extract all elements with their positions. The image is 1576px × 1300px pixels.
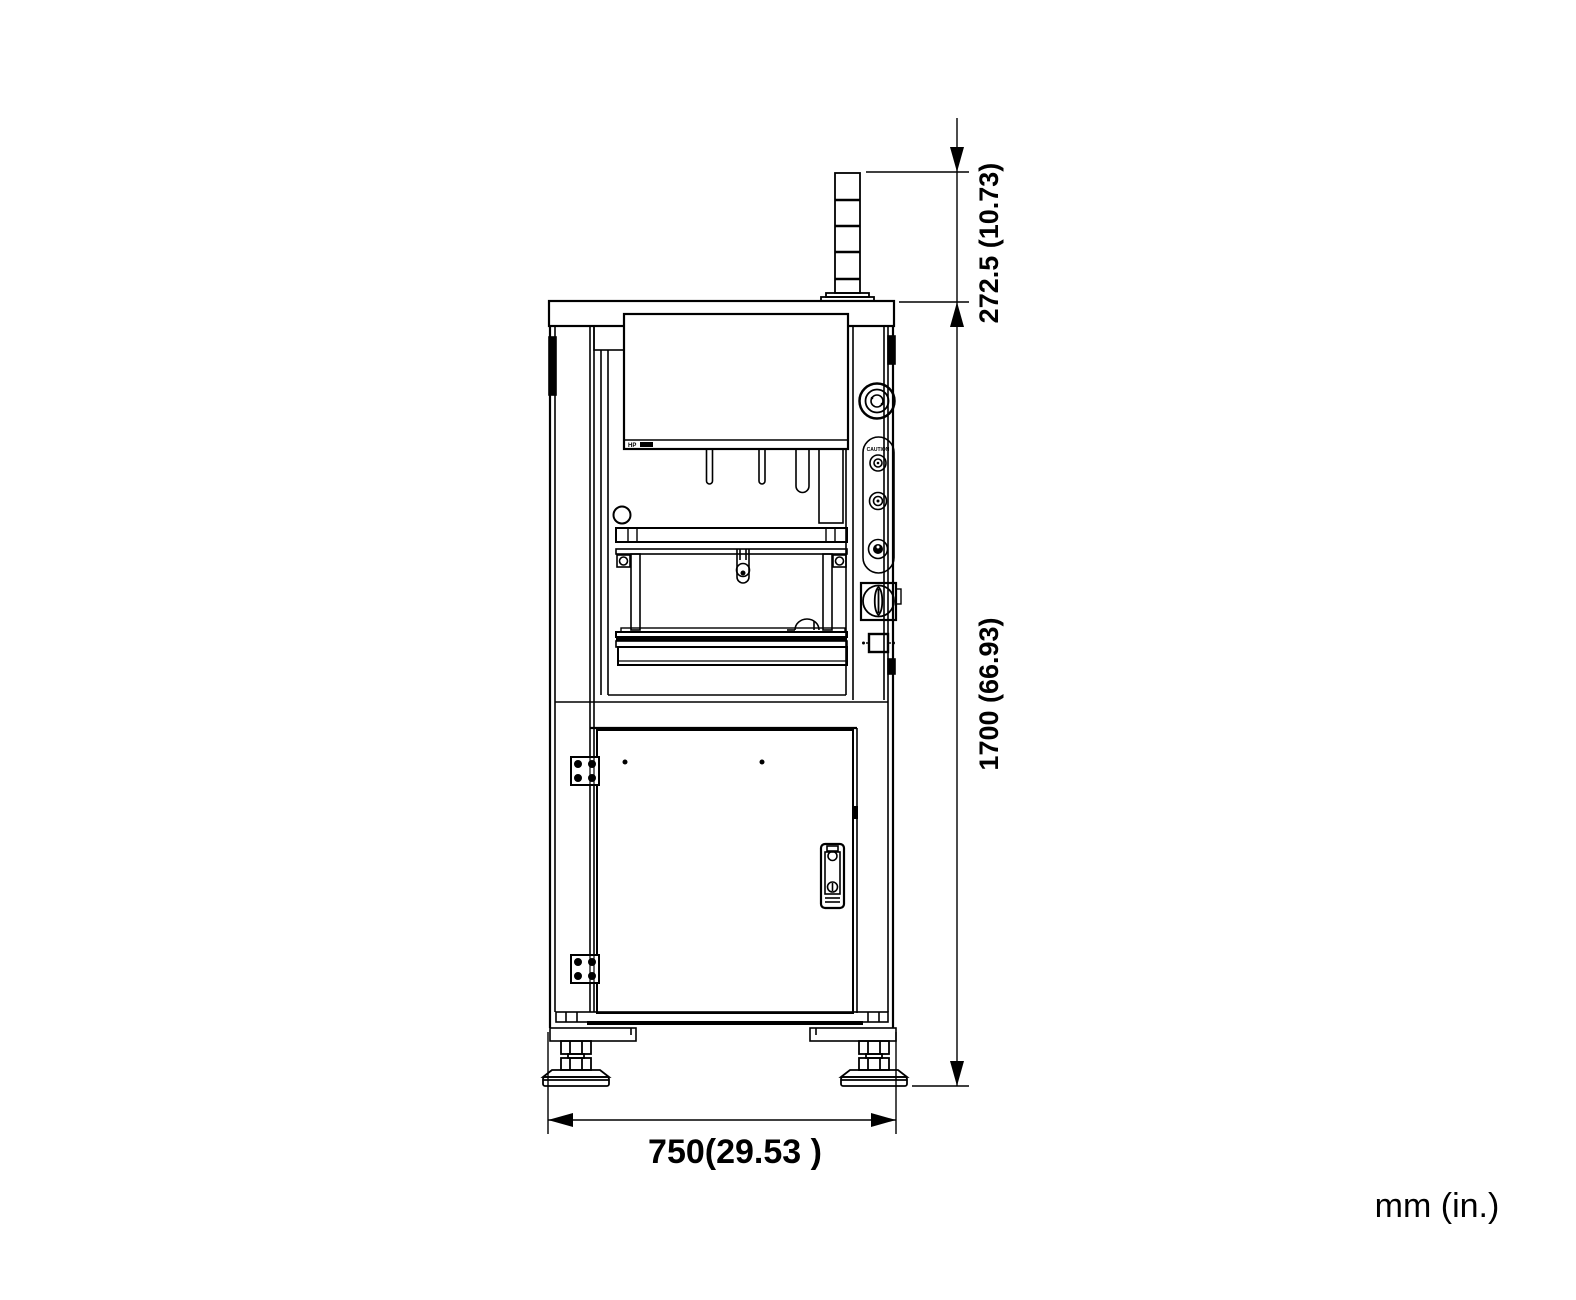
dim-label-272: 272.5 (10.73)	[974, 163, 1004, 324]
guide-post-left	[631, 554, 640, 630]
guide-post-right	[823, 554, 832, 630]
tool-rod-thick	[796, 449, 809, 493]
work-table	[616, 628, 847, 665]
dim-tower-height: 272.5 (10.73)	[974, 163, 1004, 324]
model-label: HP	[628, 443, 636, 449]
dim-label-750: 750(29.53 )	[648, 1133, 822, 1171]
machine-front-view-drawing: HP	[0, 0, 1576, 1300]
door-screw-left	[623, 760, 628, 765]
tool-rod-thin-2	[759, 449, 765, 484]
signal-tower	[821, 173, 874, 301]
tool-block	[819, 449, 843, 523]
caution-label: CAUTION	[867, 447, 890, 453]
work-area-frame	[616, 549, 847, 630]
dim-label-1700: 1700 (66.93)	[974, 617, 1004, 770]
frame-slot-cover-left	[549, 337, 556, 395]
table-tray	[618, 647, 847, 665]
base-plate-right	[810, 1028, 896, 1041]
head-cover-panel	[624, 314, 848, 449]
arrow-up-machine-top	[950, 302, 964, 327]
door-latch-strike	[853, 806, 858, 819]
base-plate-left	[550, 1028, 636, 1041]
door-screw-right	[760, 760, 765, 765]
frame-slot-cover-right-top	[888, 336, 895, 364]
model-label-block	[640, 442, 653, 447]
frame-slot-cover-right-bottom	[888, 659, 895, 674]
main-power-switch	[861, 583, 901, 620]
frame-hole	[614, 507, 631, 524]
lower-cabinet-door	[597, 728, 858, 1013]
arrow-down-tower-top	[950, 147, 964, 172]
control-button-panel	[863, 437, 894, 573]
leveling-foot-left	[543, 1041, 609, 1086]
dim-machine-height: 1700 (66.93)	[974, 617, 1004, 770]
tool-rod-thin-1	[707, 449, 713, 484]
arrow-left-width	[548, 1113, 573, 1127]
door-handle	[821, 844, 844, 908]
arrow-right-width	[871, 1113, 896, 1127]
technical-drawing-canvas: HP	[0, 0, 1576, 1300]
dim-machine-width: 750(29.53 )	[548, 1032, 896, 1171]
door-hinge-top	[571, 757, 599, 785]
press-beam	[616, 528, 847, 542]
connector-port	[862, 634, 895, 652]
emergency-stop-button	[860, 384, 895, 419]
base-frame	[550, 1012, 896, 1041]
units-label: mm (in.)	[1375, 1187, 1500, 1225]
door-hinge-bottom	[571, 955, 599, 983]
leveling-foot-right	[841, 1041, 907, 1086]
tool-rods	[707, 449, 844, 523]
arrow-down-floor	[950, 1061, 964, 1086]
